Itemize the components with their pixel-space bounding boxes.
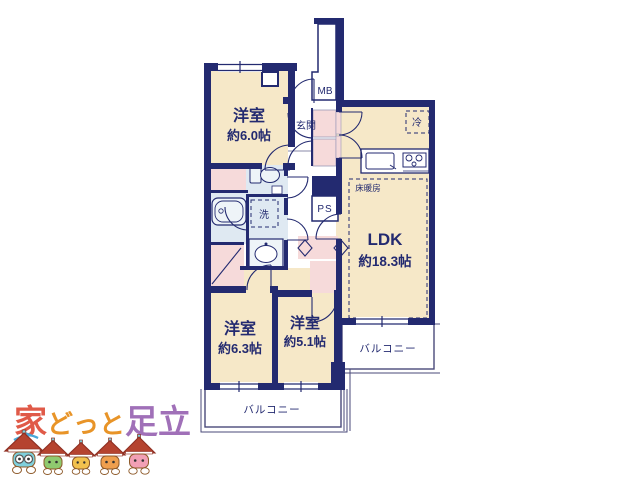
mascot-house-3-icon [67, 440, 95, 474]
entrance-label: 玄関 [296, 119, 316, 132]
floorplan-svg: 洋室 約6.0帖 玄関 MB 冷 床暖房 PS 洗 LDK 約18.3帖 洋室 … [0, 0, 640, 480]
bedroom-left-label: 洋室 [224, 319, 256, 338]
bedroom-left-size: 約6.3帖 [218, 341, 262, 356]
kitchen-counter [361, 149, 429, 173]
mascot-house-5-icon [123, 435, 155, 475]
bedroom-mid-size: 約5.1帖 [284, 334, 327, 349]
corner-box [262, 72, 278, 86]
mascot-house-4-icon [95, 438, 125, 475]
window-ldk [356, 316, 408, 327]
bedroom-top-label: 洋室 [233, 106, 265, 125]
meter-box-label: MB [318, 86, 333, 97]
logo-text-adachi: 足立 [125, 403, 191, 440]
window-bedroom-mid [284, 381, 318, 392]
closet-upper [211, 165, 246, 192]
window-bedroom-left [220, 381, 258, 392]
washbasin-icon [249, 239, 283, 268]
window-bedroom-top [218, 61, 262, 73]
pipe-space-shaft [312, 176, 338, 196]
bedroom-top-size: 約6.0帖 [227, 128, 271, 143]
pipe-space-label: PS [317, 204, 332, 215]
ldk-floor [342, 106, 430, 319]
ldk-size: 約18.3帖 [358, 253, 412, 269]
logo-text-dotto: どっと [47, 409, 125, 439]
shoe-cabinet-b [313, 139, 336, 166]
mascot-house-2-icon [38, 438, 68, 475]
floorplan-page: { "plan": { "rooms": { "bedroom_top": {"… [0, 0, 640, 480]
fridge-label: 冷 [412, 116, 422, 129]
shoe-cabinet-a [313, 110, 336, 137]
closet-bedroom-mid-b [310, 261, 338, 293]
logo-text: 家どっと足立 [14, 403, 191, 440]
balcony-bottom-label: バルコニー [243, 404, 300, 416]
ldk-label: LDK [368, 230, 404, 249]
washer-label: 洗 [259, 209, 269, 221]
bedroom-mid-label: 洋室 [290, 314, 320, 332]
balcony-right-label: バルコニー [359, 343, 416, 355]
floor-heating-label: 床暖房 [355, 183, 381, 193]
logo: 家どっと足立 [5, 403, 191, 475]
toilet-basin-icon [272, 186, 282, 194]
